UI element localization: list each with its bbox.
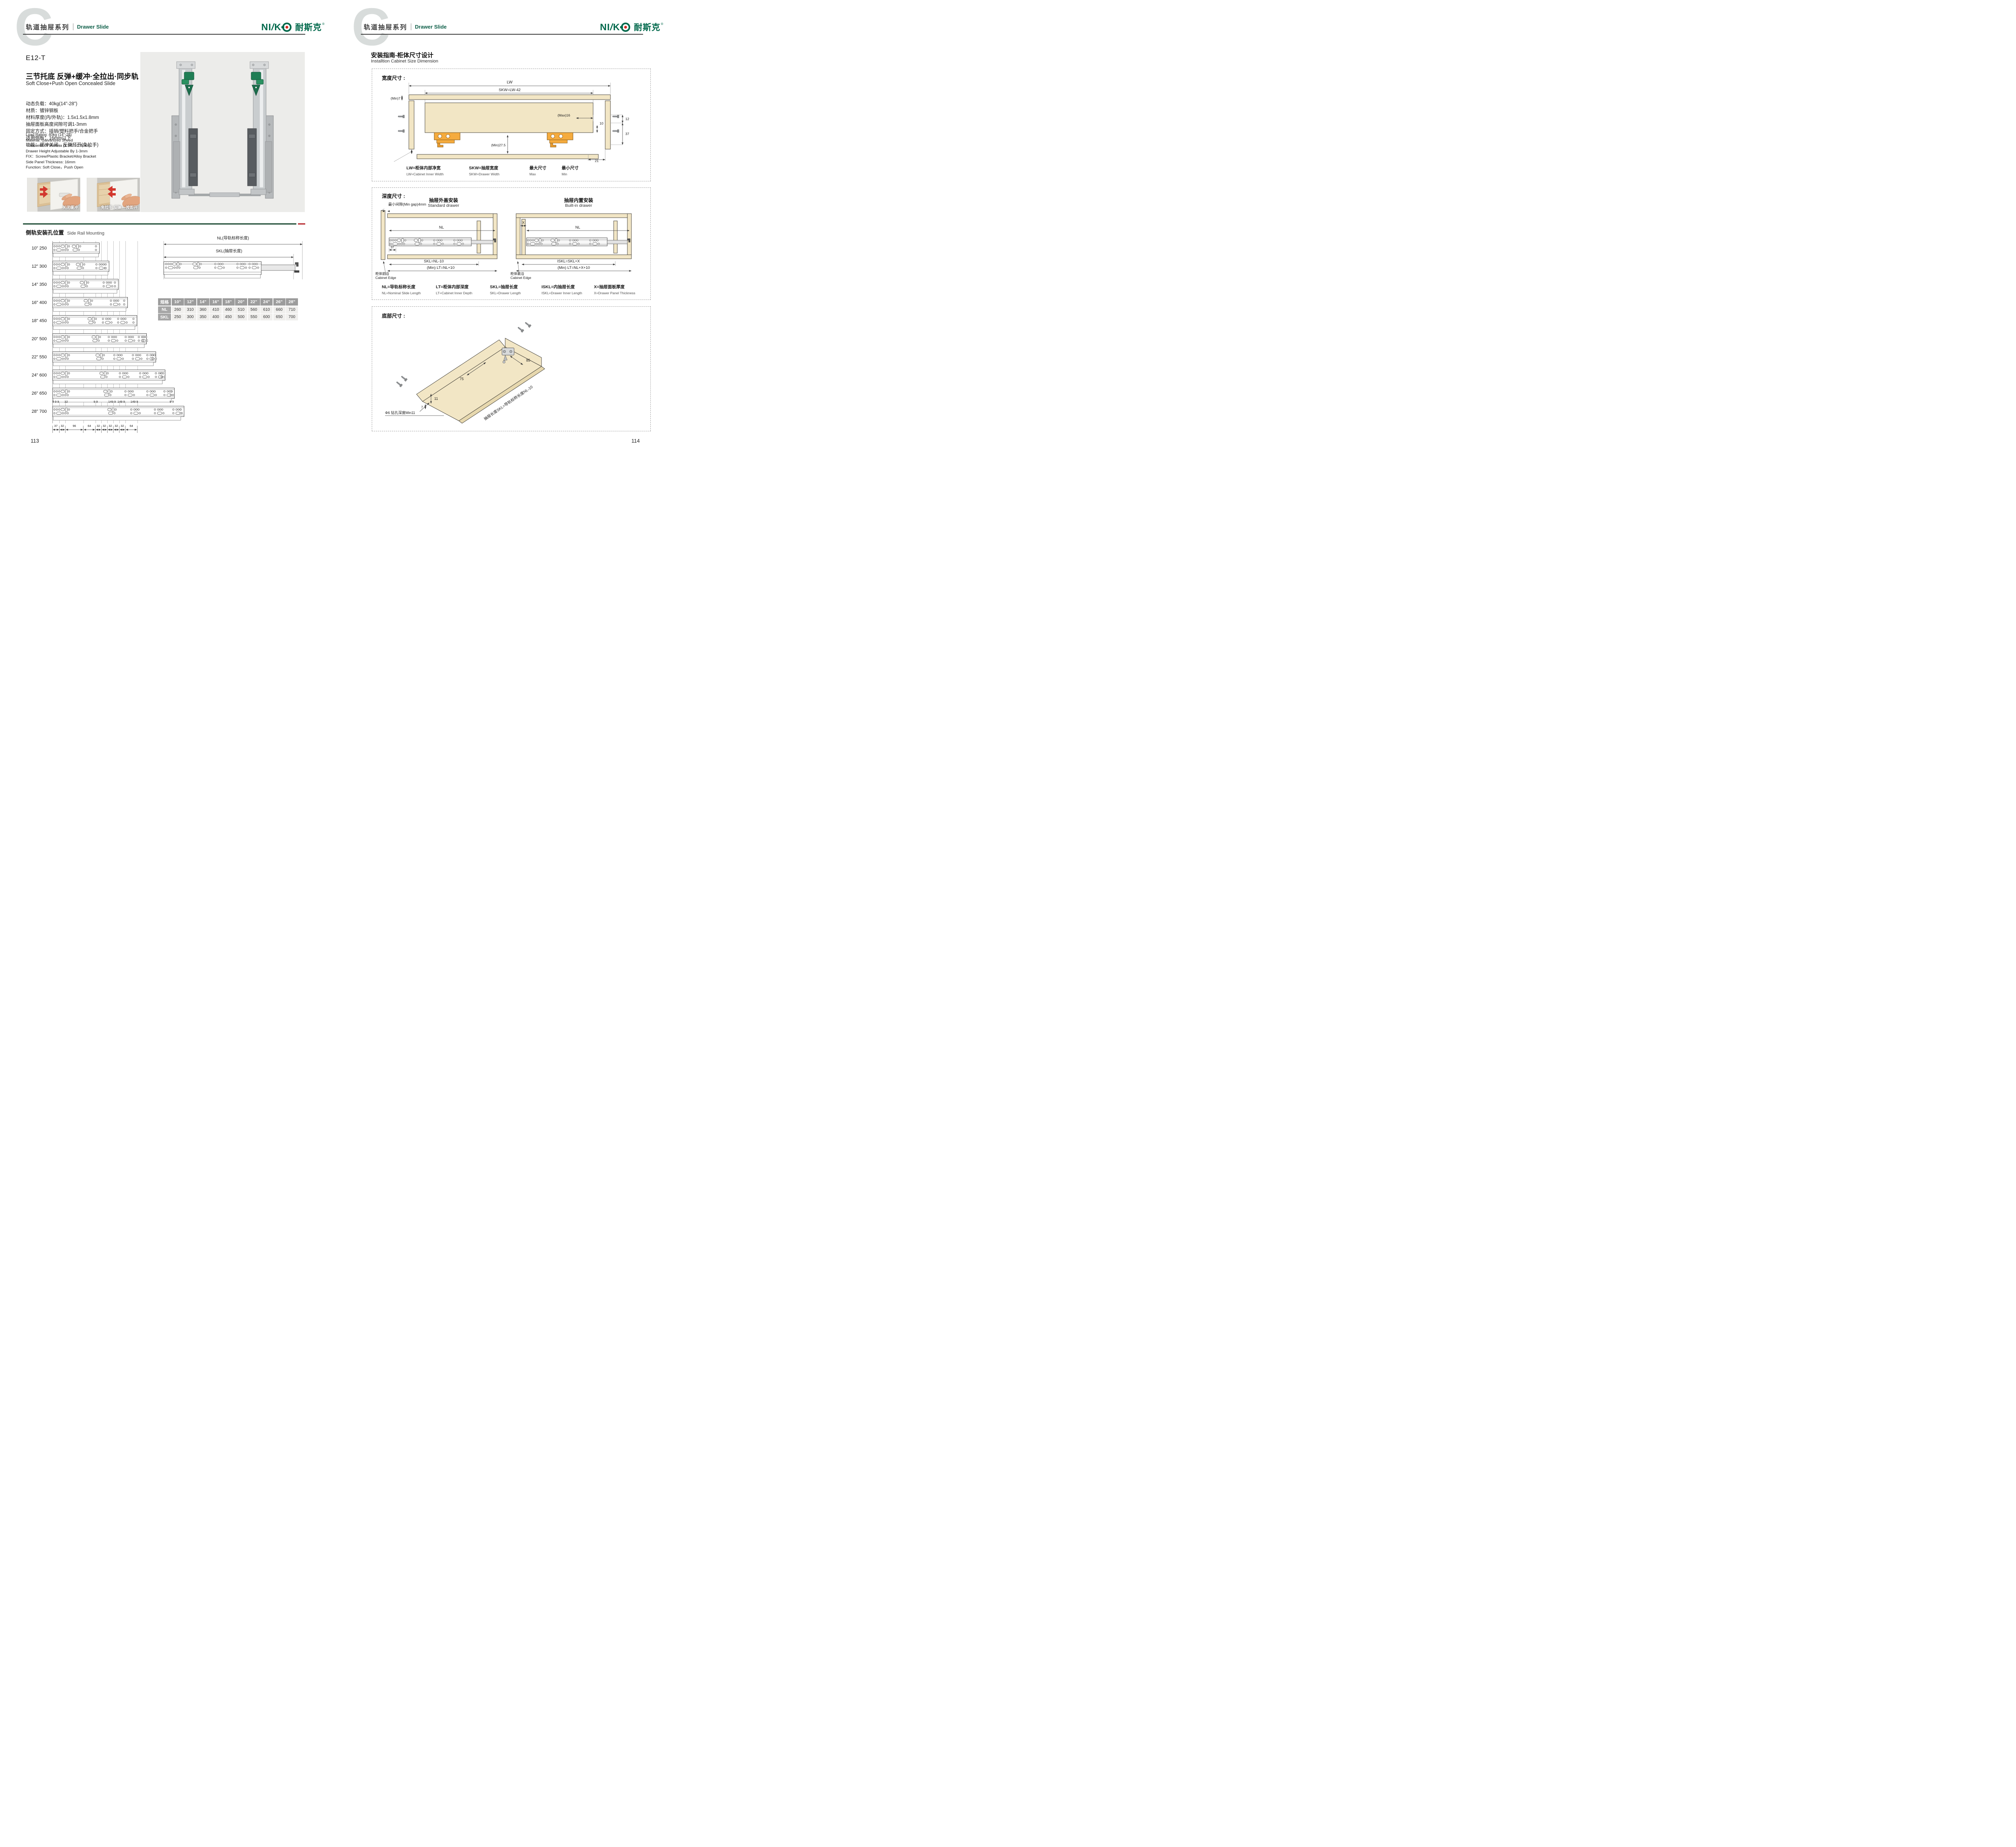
d37-dim-label: 37 <box>391 245 394 249</box>
table-cell: 450 <box>223 314 235 320</box>
width-dimension-box: 宽度尺寸 : LWSKW=LW-42(Min)7(Max)16101237(Mi… <box>372 69 651 181</box>
rail-drawing <box>52 349 157 370</box>
rail-bottom-dims: 37329664323232323264 <box>52 422 139 437</box>
rail-top-dim: 9 9 <box>94 400 98 404</box>
brand-logo-right: NI/K 耐斯克 ® <box>600 21 663 33</box>
install-guide-title-cn: 安装指南-柜体尺寸设计 <box>371 51 433 59</box>
series-title-en: Drawer Slide <box>415 24 447 30</box>
table-cell: 300 <box>184 314 196 320</box>
drill-note: Φ6 钻孔深度Min11 <box>385 410 415 415</box>
section-rule-green <box>23 223 296 225</box>
section-rule-red <box>298 223 305 225</box>
rail-drawing <box>52 277 120 297</box>
rail-size-label: 12" 300 <box>23 264 47 269</box>
legend-cn: ISKL=内抽屉长度 <box>541 284 582 290</box>
table-header-cell: 24" <box>260 298 273 306</box>
table-cell: 410 <box>210 306 222 313</box>
svg-text:32: 32 <box>115 424 118 428</box>
table-header-cell: 规格 <box>158 298 171 306</box>
series-title-en: Drawer Slide <box>77 24 109 30</box>
legend-en: Min <box>562 172 579 176</box>
d10-label: 10 <box>600 121 604 125</box>
page-header-right: 轨道抽屉系列 Drawer Slide <box>364 22 447 31</box>
slide-side-view: NL(导轨标称长度)SKL(抽屉长度) <box>160 235 306 285</box>
standard-drawer-diagram: NL37SKL=NL-10(Min) LT=NL+10 <box>380 207 507 278</box>
rail-size-label: 26" 650 <box>23 391 47 396</box>
product-subtitle-cn: 三节托底 反弹+缓冲·全拉出·同步轨 <box>26 71 139 81</box>
min275-label: (Min)27.5 <box>491 143 506 147</box>
width-diagram: LWSKW=LW-42(Min)7(Max)16101237(Min)27.5(… <box>387 79 633 162</box>
catalog-spread: C 轨道抽屉系列 Drawer Slide NI/K 耐斯克 ® E12-T 三… <box>0 0 676 462</box>
legend-cn: LT=柜体内部深度 <box>436 284 472 290</box>
bottom-diagram: 7585117Φ6 钻孔深度Min11抽屉长度SKL=导轨标称长度NL-10 <box>384 319 638 427</box>
rail-drawing <box>52 258 110 279</box>
table-header-cell: 28" <box>286 298 298 306</box>
rail-row: 22" 550 <box>23 349 313 368</box>
nl-label: NL(导轨标称长度) <box>217 235 249 241</box>
legend-cn: SKL=抽屉长度 <box>490 284 521 290</box>
legend-en: SKW=Drawer Width <box>469 172 500 176</box>
legend-item: ISKL=内抽屉长度 ISKL=Drawer Inner Length <box>541 284 582 295</box>
logo-latin: NI/K <box>261 22 281 33</box>
d21-label: 21 <box>595 159 599 162</box>
table-header-cell: 18" <box>223 298 235 306</box>
spec-line-en: Drawer Height Adjustable By 1-3mm <box>26 149 96 154</box>
model-code: E12-T <box>26 54 46 62</box>
bottom-heading: 底部尺寸 : <box>382 312 405 319</box>
standard-drawer-title-cn: 抽屉外盖安装 <box>411 197 476 204</box>
table-cell: 350 <box>197 314 209 320</box>
legend-item: LT=柜体内部深度 LT=Cabinet Inner Depth <box>436 284 472 295</box>
logo-o-icon <box>282 23 292 32</box>
table-header-cell: 10" <box>172 298 184 306</box>
rail-size-label: 16" 400 <box>23 300 47 305</box>
rail-drawing <box>52 367 167 388</box>
d37-label: 37 <box>625 132 629 136</box>
legend-en: X=Drawer Panel Thickness <box>594 291 635 295</box>
rail-drawing <box>52 240 101 261</box>
logo-cn: 耐斯克 <box>295 21 322 33</box>
specs-en: Load Rating: 40kg (14"-28)Material: Galv… <box>26 132 96 171</box>
table-cell: 400 <box>210 314 222 320</box>
skl-label: SKL(抽屉长度) <box>216 248 242 254</box>
photo-caption: 免拉手 反弹 一按即开 <box>101 204 137 210</box>
rail-drawing <box>52 404 185 424</box>
depth-dimension-box: 深度尺寸 : 最小间隙(Min gap)4mm 抽屉外盖安装 Standard … <box>372 187 651 300</box>
rail-size-label: 10" 250 <box>23 246 47 251</box>
cabinet-edge-label-left: 柜体前沿Cabinet Edge <box>375 272 396 280</box>
svg-text:32: 32 <box>121 424 124 428</box>
photo-push-open: 免拉手 反弹 一按即开 <box>87 178 140 212</box>
legend-item: LW=柜体内部净宽 LW=Cabinet Inner Width <box>406 165 444 176</box>
rail-drawing <box>52 331 148 352</box>
min7-label: (Min)7 <box>391 96 400 100</box>
svg-text:64: 64 <box>87 424 91 428</box>
logo-registered-mark: ® <box>322 22 325 26</box>
table-cell: 360 <box>197 306 209 313</box>
legend-item: X=抽屉面板厚度 X=Drawer Panel Thickness <box>594 284 635 295</box>
photo-caption: 关闭缓冲 <box>62 204 78 210</box>
legend-en: SKL=Drawer Length <box>490 291 521 295</box>
d85-label: 85 <box>526 358 530 362</box>
legend-en: Max <box>529 172 546 176</box>
spec-line-en: Material: Galvanized Sheed <box>26 138 96 144</box>
series-title-cn: 轨道抽屉系列 <box>26 22 69 31</box>
legend-cn: LW=柜体内部净宽 <box>406 165 444 171</box>
min3-label: (Min)3 <box>390 162 400 162</box>
lt-dim-label: (Min) LT=NL+10 <box>427 266 454 270</box>
spec-line-en: Function: Soft Close，Push Open <box>26 165 96 171</box>
svg-text:64: 64 <box>130 424 133 428</box>
rail-drawing <box>52 313 138 333</box>
series-divider <box>73 23 73 30</box>
rail-row: 24" 600 <box>23 367 313 386</box>
skl-dim-label: SKL=NL-10 <box>424 259 444 264</box>
lw-label: LW <box>507 80 513 85</box>
legend-en: NL=Nominal Slide Length <box>382 291 421 295</box>
rail-top-dim: 149 9 <box>131 400 138 404</box>
table-cell: 700 <box>286 314 298 320</box>
install-guide-title-en: Installtion Cabinet Size Dimension <box>371 59 438 64</box>
logo-registered-mark: ® <box>661 22 663 26</box>
rail-size-label: 18" 450 <box>23 318 47 323</box>
legend-cn: 最大尺寸 <box>529 165 546 171</box>
brand-logo-left: NI/K 耐斯克 ® <box>261 21 324 33</box>
rail-top-dim: 32 <box>65 400 68 404</box>
legend-en: ISKL=Drawer Inner Length <box>541 291 582 295</box>
table-header-cell: 12" <box>184 298 196 306</box>
skw-label: SKW=LW-42 <box>499 88 521 92</box>
table-cell: 560 <box>248 306 260 313</box>
spec-line-en: FIX：Screw/Plastic Bracket/Alloy Bracket <box>26 154 96 160</box>
spec-line-cn: 材料厚度(内/外轨)：1.5x1.5x1.8mm <box>26 114 99 121</box>
builtin-drawer-title-cn: 抽屉内置安装 <box>546 197 611 204</box>
size-table: 规格10"12"14"16"18"20"22"24"26"28"NL260310… <box>158 298 298 320</box>
table-cell: 600 <box>260 314 273 320</box>
lt-dim-label: (Min) LT=NL+X+10 <box>558 266 590 270</box>
table-cell: 260 <box>172 306 184 313</box>
depth-legend: NL=导轨标称长度 NL=Nominal Slide LengthLT=柜体内部… <box>372 284 650 297</box>
builtin-drawer-diagram: XNLISKL=SKL+X(Min) LT=NL+X+10 <box>515 207 642 278</box>
legend-cn: X=抽屉面板厚度 <box>594 284 635 290</box>
table-row-label: NL <box>158 306 171 313</box>
page-number-left: 113 <box>31 438 39 444</box>
legend-cn: 最小尺寸 <box>562 165 579 171</box>
table-cell: 310 <box>184 306 196 313</box>
legend-cn: SKW=抽屉宽度 <box>469 165 500 171</box>
table-cell: 250 <box>172 314 184 320</box>
rail-size-label: 20" 500 <box>23 337 47 341</box>
table-cell: 610 <box>260 306 273 313</box>
cabinet-edge-label-right: 柜体前沿Cabinet Edge <box>510 272 531 280</box>
d12-label: 12 <box>625 117 629 121</box>
rail-row: 28" 700 <box>23 404 313 422</box>
legend-en: LT=Cabinet Inner Depth <box>436 291 472 295</box>
max16-label: (Max)16 <box>558 113 570 117</box>
section-title: 侧轨安装孔位置Side Rail Mounting <box>26 228 104 237</box>
logo-o-icon <box>621 23 630 32</box>
rail-top-dim: 9 9 9 <box>52 400 59 404</box>
svg-text:32: 32 <box>109 424 112 428</box>
legend-item: SKW=抽屉宽度 SKW=Drawer Width <box>469 165 500 176</box>
table-cell: 460 <box>223 306 235 313</box>
spec-line-en: Thickness Of Materia (1.5/1.5/1.8mm) <box>26 143 96 149</box>
table-header-cell: 22" <box>248 298 260 306</box>
table-cell: 510 <box>235 306 247 313</box>
legend-item: NL=导轨标称长度 NL=Nominal Slide Length <box>382 284 421 295</box>
bottom-dimension-box: 底部尺寸 : 7585117Φ6 钻孔深度Min11抽屉长度SKL=导轨标称长度… <box>372 306 651 431</box>
nl-dim-label: NL <box>439 225 444 230</box>
legend-item: 最大尺寸 Max <box>529 165 546 176</box>
table-cell: 660 <box>273 306 285 313</box>
product-image <box>140 52 305 212</box>
table-header-cell: 14" <box>197 298 209 306</box>
x-dim-label: X <box>522 220 525 225</box>
table-cell: 710 <box>286 306 298 313</box>
table-row-label: SKL <box>158 314 171 320</box>
header-rule-left <box>23 34 305 35</box>
rail-top-dim: 9 9 <box>170 400 174 404</box>
logo-cn: 耐斯克 <box>634 21 660 33</box>
nl-dim-label: NL <box>575 225 580 230</box>
table-header-cell: 20" <box>235 298 247 306</box>
table-cell: 500 <box>235 314 247 320</box>
series-title-cn: 轨道抽屉系列 <box>364 22 407 31</box>
rail-top-dim: 149 9 <box>117 400 125 404</box>
legend-item: 最小尺寸 Min <box>562 165 579 176</box>
section-title-en: Side Rail Mounting <box>67 231 104 236</box>
spec-line-cn: 抽屉面板高度间隙可调1-3mm <box>26 121 99 128</box>
legend-en: LW=Cabinet Inner Width <box>406 172 444 176</box>
svg-text:32: 32 <box>103 424 106 428</box>
depth-heading: 深度尺寸 : <box>382 192 405 200</box>
legend-cn: NL=导轨标称长度 <box>382 284 421 290</box>
d75-label: 75 <box>460 377 464 381</box>
svg-text:32: 32 <box>60 424 64 428</box>
page-header-left: 轨道抽屉系列 Drawer Slide <box>26 22 109 31</box>
section-title-cn: 侧轨安装孔位置 <box>26 230 64 236</box>
spec-line-cn: 动态负载：40kg(14"-28") <box>26 101 99 108</box>
svg-text:37: 37 <box>54 424 57 428</box>
product-subtitle-en: Soft Close+Push Open Concealed Slide <box>26 81 115 86</box>
spec-line-en: Side Panel Thickness: 16mm <box>26 160 96 165</box>
iskl-dim-label: ISKL=SKL+X <box>557 259 580 264</box>
d11-label: 11 <box>434 397 438 401</box>
svg-text:32: 32 <box>97 424 100 428</box>
photo-soft-close: 关闭缓冲 <box>27 178 80 212</box>
rail-size-label: 22" 550 <box>23 355 47 360</box>
table-header-cell: 26" <box>273 298 285 306</box>
table-cell: 550 <box>248 314 260 320</box>
spec-line-cn: 材质：镀锌钢板 <box>26 108 99 114</box>
page-number-right: 114 <box>631 438 640 444</box>
rail-row: 20" 500 <box>23 331 313 349</box>
rail-size-label: 24" 600 <box>23 373 47 378</box>
logo-latin: NI/K <box>600 22 620 33</box>
width-legend: LW=柜体内部净宽 LW=Cabinet Inner WidthSKW=抽屉宽度… <box>372 165 650 179</box>
svg-text:96: 96 <box>73 424 76 428</box>
series-divider <box>411 23 411 30</box>
spec-line-en: Load Rating: 40kg (14"-28) <box>26 132 96 138</box>
table-header-cell: 16" <box>210 298 222 306</box>
rail-drawing <box>52 295 129 315</box>
rail-size-label: 14" 350 <box>23 282 47 287</box>
rail-size-label: 28" 700 <box>23 409 47 414</box>
table-cell: 650 <box>273 314 285 320</box>
header-rule-right <box>361 34 643 35</box>
legend-item: SKL=抽屉长度 SKL=Drawer Length <box>490 284 521 295</box>
rail-top-dim: 149 9 <box>108 400 116 404</box>
